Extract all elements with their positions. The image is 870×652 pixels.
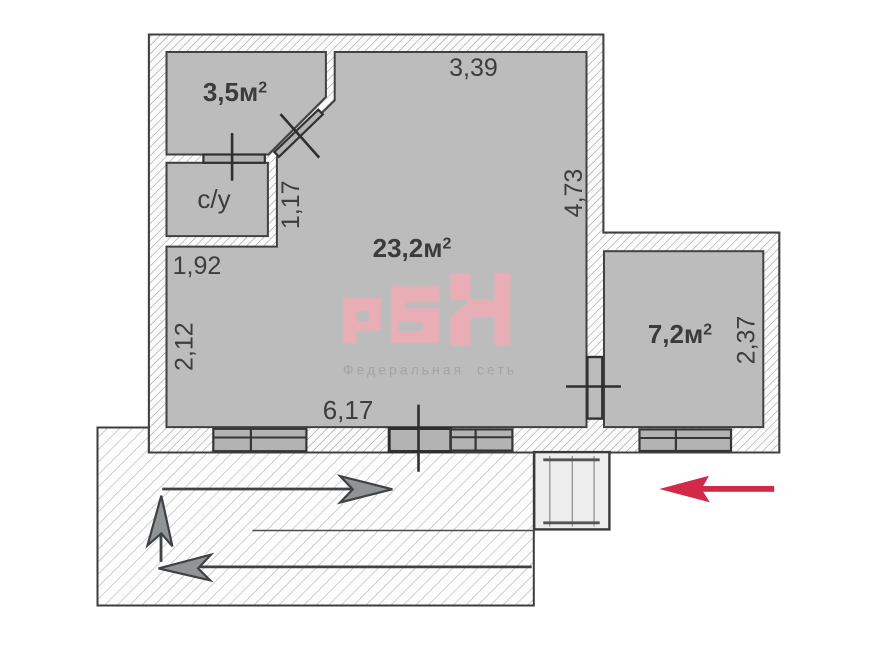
svg-text:2,12: 2,12: [171, 322, 199, 371]
svg-text:7,2м2: 7,2м2: [648, 319, 712, 349]
svg-text:23,2м2: 23,2м2: [373, 233, 452, 263]
svg-text:4,73: 4,73: [560, 169, 588, 218]
svg-text:с/у: с/у: [197, 184, 230, 214]
svg-text:1,17: 1,17: [277, 180, 305, 229]
svg-text:3,5м2: 3,5м2: [203, 77, 267, 107]
svg-text:1,92: 1,92: [173, 252, 222, 280]
svg-text:Федеральная сеть: Федеральная сеть: [343, 362, 517, 378]
svg-text:6,17: 6,17: [323, 395, 374, 425]
svg-text:3,39: 3,39: [449, 54, 498, 82]
svg-text:2,37: 2,37: [733, 316, 761, 365]
